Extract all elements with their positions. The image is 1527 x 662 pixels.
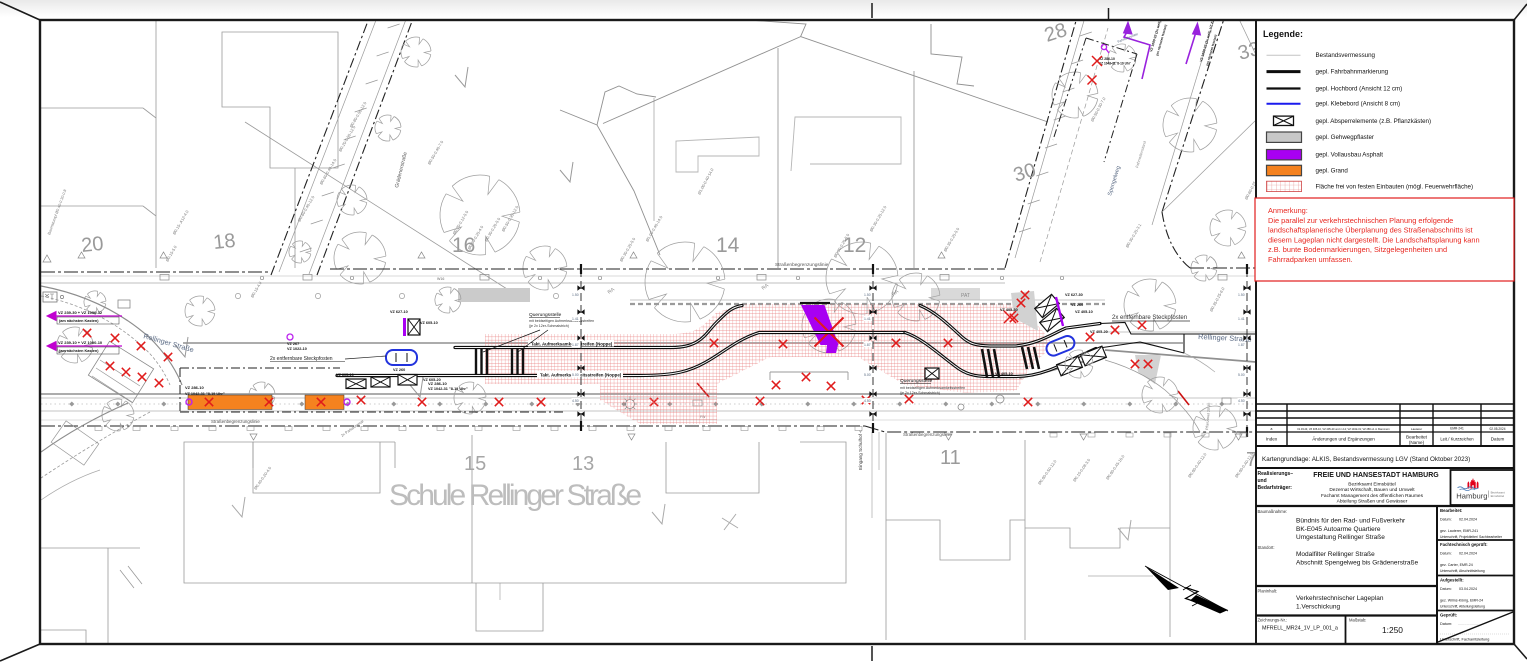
svg-text:4.50: 4.50 bbox=[864, 399, 871, 403]
svg-text:Fachtechnisch geprüft:: Fachtechnisch geprüft: bbox=[1440, 542, 1488, 547]
svg-text:5.00: 5.00 bbox=[1238, 373, 1245, 377]
svg-text:Datum:: Datum: bbox=[1440, 518, 1452, 522]
svg-text:Bedarfsträger:: Bedarfsträger: bbox=[1258, 485, 1293, 491]
svg-text:4.50: 4.50 bbox=[572, 399, 579, 403]
svg-text:16: 16 bbox=[452, 234, 475, 257]
svg-text:01.03.24; VZ 405-10, VZ 405-20: 01.03.24; VZ 405-10, VZ 405-20 und m 12;… bbox=[1297, 427, 1390, 431]
svg-text:20: 20 bbox=[80, 233, 104, 257]
svg-text:Umgestaltung Rellinger Straße: Umgestaltung Rellinger Straße bbox=[1296, 534, 1385, 541]
svg-text:gepl. Vollausbau Asphalt: gepl. Vollausbau Asphalt bbox=[1316, 152, 1384, 159]
svg-text:Datum:: Datum: bbox=[1440, 552, 1452, 556]
svg-text:Standort:: Standort: bbox=[1258, 545, 1275, 550]
svg-text:mit beidseitigen Aufmerksamkei: mit beidseitigen Aufmerksamkeitsstreifen bbox=[529, 319, 594, 323]
svg-text:Dezernat Wirtschaft, Bauen und: Dezernat Wirtschaft, Bauen und Umwelt bbox=[1329, 487, 1415, 493]
svg-text:Aufgestellt:: Aufgestellt: bbox=[1440, 578, 1464, 583]
svg-text:VZ 605-20: VZ 605-20 bbox=[423, 378, 441, 382]
svg-text:Leit./ Kurzzeichen: Leit./ Kurzzeichen bbox=[1440, 437, 1474, 442]
svg-text:gez. Carter, EMR-24: gez. Carter, EMR-24 bbox=[1440, 563, 1473, 567]
svg-text:Takt. Aufmerksamkeitsstreifen: Takt. Aufmerksamkeitsstreifen (Noppe) bbox=[540, 373, 622, 378]
svg-text:Hamburg: Hamburg bbox=[1456, 492, 1487, 501]
svg-text:Kartengrundlage: ALKIS, Bestan: Kartengrundlage: ALKIS, Bestandsvermessu… bbox=[1262, 456, 1470, 463]
svg-text:VZ 405-10: VZ 405-10 bbox=[995, 372, 1013, 376]
svg-text:1.50: 1.50 bbox=[864, 293, 871, 297]
svg-text:.....................: ..................... bbox=[1458, 622, 1480, 626]
svg-text:Anmerkung:: Anmerkung: bbox=[1268, 206, 1308, 215]
svg-text:Datum:: Datum: bbox=[1440, 622, 1452, 626]
svg-text:gez. Lauterer, EMR-241: gez. Lauterer, EMR-241 bbox=[1440, 529, 1478, 533]
svg-text:Bearbeitet:: Bearbeitet: bbox=[1440, 508, 1463, 513]
svg-text:15: 15 bbox=[464, 453, 486, 475]
svg-text:Geprüft:: Geprüft: bbox=[1440, 613, 1458, 618]
svg-text:VZ 627-10: VZ 627-10 bbox=[390, 310, 408, 314]
svg-text:landschaftsplanerische Überpla: landschaftsplanerische Überplanung des S… bbox=[1268, 226, 1473, 235]
svg-text:1.Verschickung: 1.Verschickung bbox=[1296, 603, 1340, 610]
svg-text:FREIE UND HANSESTADT HAMBURG: FREIE UND HANSESTADT HAMBURG bbox=[1313, 472, 1439, 479]
svg-text:Abteilung Straßen und Gewässer: Abteilung Straßen und Gewässer bbox=[1337, 499, 1408, 505]
svg-text:2x entfernbare Steckpfosten: 2x entfernbare Steckpfosten bbox=[270, 356, 333, 362]
svg-text:Unterschrift, Abteilungsleitun: Unterschrift, Abteilungsleitung bbox=[1440, 605, 1485, 609]
svg-text:Legende:: Legende: bbox=[1263, 29, 1303, 39]
svg-text:5.00: 5.00 bbox=[572, 373, 579, 377]
svg-text:EMR-241: EMR-241 bbox=[1450, 427, 1464, 431]
svg-text:Verkehrstechnischer Lageplan: Verkehrstechnischer Lageplan bbox=[1296, 595, 1384, 602]
svg-text:Index: Index bbox=[1266, 437, 1278, 442]
svg-text:gepl. Grand: gepl. Grand bbox=[1316, 168, 1349, 175]
svg-text:Schule Rellinger Straße: Schule Rellinger Straße bbox=[389, 479, 642, 512]
svg-text:(je 2x 12er-Schmalstrich): (je 2x 12er-Schmalstrich) bbox=[900, 391, 940, 395]
svg-text:1.41: 1.41 bbox=[572, 317, 579, 321]
svg-text:4.50: 4.50 bbox=[1238, 399, 1245, 403]
svg-text:1.50: 1.50 bbox=[1238, 293, 1245, 297]
svg-text:Änderungen und Ergänzungen: Änderungen und Ergänzungen bbox=[1312, 436, 1375, 442]
svg-text:14: 14 bbox=[716, 234, 740, 257]
svg-text:02.05.2024: 02.05.2024 bbox=[1490, 427, 1506, 431]
svg-text:VZ 1022-10: VZ 1022-10 bbox=[287, 347, 307, 351]
svg-text:02.04.2024: 02.04.2024 bbox=[1459, 518, 1477, 522]
svg-text:Maßstab:: Maßstab: bbox=[1349, 618, 1366, 623]
svg-text:(je 2x 12er-Schmalstrich): (je 2x 12er-Schmalstrich) bbox=[529, 324, 569, 328]
svg-text:1.50: 1.50 bbox=[572, 293, 579, 297]
svg-text:Bezirksamt Eimsbüttel: Bezirksamt Eimsbüttel bbox=[1348, 482, 1395, 488]
svg-text:VZ 267: VZ 267 bbox=[287, 342, 299, 346]
svg-text:Fahrradparken umfassen.: Fahrradparken umfassen. bbox=[1268, 255, 1353, 264]
svg-text:Modalfilter Rellinger Straße: Modalfilter Rellinger Straße bbox=[1296, 551, 1375, 558]
svg-text:Realisierungs–: Realisierungs– bbox=[1258, 471, 1294, 477]
svg-text:diesem Lageplan nicht dargeste: diesem Lageplan nicht dargestellt. Die L… bbox=[1268, 235, 1480, 244]
svg-text:Datum: Datum bbox=[1491, 437, 1505, 442]
svg-text:VZ 605-10: VZ 605-10 bbox=[336, 373, 354, 377]
svg-text:1.87: 1.87 bbox=[864, 343, 871, 347]
svg-text:VZ 286-10: VZ 286-10 bbox=[185, 385, 204, 390]
svg-text:Fachamt Management des öffentl: Fachamt Management des öffentlichen Raum… bbox=[1321, 493, 1424, 499]
svg-text:z.B. bunte Bodenmarkierungen,: z.B. bunte Bodenmarkierungen, Sitzgelege… bbox=[1268, 245, 1447, 254]
svg-text:VZ 1042-31 "8-19 Uhr": VZ 1042-31 "8-19 Uhr" bbox=[428, 387, 468, 391]
svg-text:W16: W16 bbox=[437, 277, 444, 281]
svg-text:gepl. Hochbord (Ansicht 12 cm): gepl. Hochbord (Ansicht 12 cm) bbox=[1316, 86, 1403, 93]
svg-text:Planinhalt:: Planinhalt: bbox=[1258, 589, 1278, 594]
svg-text:13: 13 bbox=[572, 453, 594, 475]
svg-text:gepl. Absperrelemente (z.B. Pf: gepl. Absperrelemente (z.B. Pflanzkästen… bbox=[1316, 118, 1432, 125]
svg-text:VZ 260: VZ 260 bbox=[1071, 303, 1083, 307]
svg-text:VZ 239-30 + VZ 1000-32: VZ 239-30 + VZ 1000-32 bbox=[58, 310, 103, 315]
svg-text:Bearbeitet: Bearbeitet bbox=[1406, 435, 1428, 440]
svg-text:Eingang Schulhof <: Eingang Schulhof < bbox=[858, 430, 863, 470]
svg-text:Straßenbegrenzungslinie: Straßenbegrenzungslinie bbox=[775, 262, 829, 268]
svg-text:11: 11 bbox=[940, 447, 961, 469]
svg-text:(am nächsten Kasten): (am nächsten Kasten) bbox=[59, 349, 99, 353]
svg-text:VZ 405-10: VZ 405-10 bbox=[1075, 310, 1093, 314]
svg-text:VZ 1042-31 '8-19 Uhr': VZ 1042-31 '8-19 Uhr' bbox=[1099, 62, 1131, 66]
svg-text:VZ 627-30: VZ 627-30 bbox=[1065, 293, 1083, 297]
svg-text:5.00: 5.00 bbox=[864, 373, 871, 377]
svg-text:(am nächsten Kasten): (am nächsten Kasten) bbox=[59, 319, 99, 323]
svg-text:gepl. Fahrbahnmarkierung: gepl. Fahrbahnmarkierung bbox=[1316, 69, 1389, 76]
svg-text:Bestandsvermessung: Bestandsvermessung bbox=[1316, 52, 1376, 59]
svg-text:1.41: 1.41 bbox=[864, 317, 871, 321]
svg-text:mit beidseitigen Aufmerksamkei: mit beidseitigen Aufmerksamkeitsstreifen bbox=[900, 386, 965, 390]
svg-text:Unterschrift, Projektleiter/ S: Unterschrift, Projektleiter/ Sachbearbei… bbox=[1440, 535, 1503, 539]
svg-text:VZ 239-10 + VZ 1000-10: VZ 239-10 + VZ 1000-10 bbox=[58, 340, 103, 345]
svg-text:Eimsbüttel: Eimsbüttel bbox=[1491, 494, 1505, 498]
svg-text:Fläche frei von festen Einbaut: Fläche frei von festen Einbauten (mögl. … bbox=[1316, 183, 1474, 190]
svg-text:Straßenbegrenzungslinie: Straßenbegrenzungslinie bbox=[211, 419, 260, 424]
svg-text:a: a bbox=[1271, 427, 1273, 431]
svg-text:1.87: 1.87 bbox=[1238, 343, 1245, 347]
svg-text:VZ 1042-31 "8-19 Uhr": VZ 1042-31 "8-19 Uhr" bbox=[185, 392, 225, 396]
svg-text:Unterschrift, Abschnittsleitun: Unterschrift, Abschnittsleitung bbox=[1440, 569, 1485, 573]
svg-text:PAT: PAT bbox=[961, 293, 970, 299]
svg-text:gez. Wilms-König, EMR-24: gez. Wilms-König, EMR-24 bbox=[1440, 599, 1483, 603]
svg-text:VZ 260: VZ 260 bbox=[393, 368, 405, 372]
svg-text:Datum:: Datum: bbox=[1440, 587, 1452, 591]
svg-text:MFRELL_MR24_1V_LP_001_a: MFRELL_MR24_1V_LP_001_a bbox=[1262, 626, 1338, 632]
svg-text:Baumaßnahme:: Baumaßnahme: bbox=[1258, 509, 1288, 514]
svg-text:Querungsstelle: Querungsstelle bbox=[529, 312, 562, 318]
svg-text:und: und bbox=[1258, 478, 1267, 484]
svg-text:03.04.2024: 03.04.2024 bbox=[1459, 587, 1477, 591]
svg-text:(Name): (Name) bbox=[1409, 440, 1425, 445]
svg-text:Abschnitt Spengelweg bis Gräde: Abschnitt Spengelweg bis Grädenerstraße bbox=[1296, 559, 1419, 566]
svg-text:Die parallel zur verkehrstechn: Die parallel zur verkehrstechnischen Pla… bbox=[1268, 216, 1453, 225]
svg-text:gepl. Gehwegpflaster: gepl. Gehwegpflaster bbox=[1316, 134, 1374, 141]
svg-text:Bündnis für den Rad- und Fußve: Bündnis für den Rad- und Fußverkehr bbox=[1296, 518, 1406, 525]
svg-text:Zeichnungs-Nr.:: Zeichnungs-Nr.: bbox=[1258, 618, 1288, 623]
svg-text:2x entfernbare Steckpfosten: 2x entfernbare Steckpfosten bbox=[1112, 315, 1187, 321]
svg-text:BK-E045 Autoarme Quartiere: BK-E045 Autoarme Quartiere bbox=[1296, 526, 1381, 533]
svg-text:18: 18 bbox=[212, 230, 236, 254]
svg-text:gepl. Klebebord (Ansicht 8 cm): gepl. Klebebord (Ansicht 8 cm) bbox=[1316, 101, 1401, 108]
svg-text:1:250: 1:250 bbox=[1382, 625, 1403, 635]
svg-text:Lauterer: Lauterer bbox=[1411, 427, 1422, 431]
svg-text:VZ 605-10: VZ 605-10 bbox=[420, 321, 438, 325]
svg-text:1.41: 1.41 bbox=[1238, 317, 1245, 321]
svg-text:1.87: 1.87 bbox=[572, 343, 579, 347]
svg-text:02.04.2024: 02.04.2024 bbox=[1459, 552, 1477, 556]
